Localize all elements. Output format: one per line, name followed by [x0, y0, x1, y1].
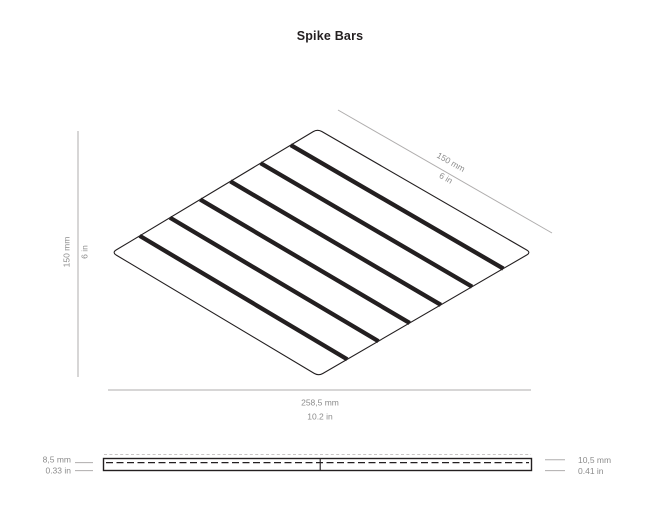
spike-bars-drawing: Spike Bars 150 mm 6 in 150 mm 6 in 258,5… — [0, 0, 671, 529]
spike-bar — [170, 218, 378, 342]
width-dimension-label-in: 10.2 in — [307, 412, 333, 422]
drawing-canvas: Spike Bars 150 mm 6 in 150 mm 6 in 258,5… — [0, 0, 671, 529]
plate-outline — [114, 130, 529, 374]
isometric-view — [114, 130, 529, 374]
spike-bar — [261, 163, 473, 287]
height-dimension-label-mm: 150 mm — [62, 237, 72, 268]
depth-dimension-label-in: 6 in — [438, 170, 455, 186]
total-height-label-mm: 10,5 mm — [578, 455, 611, 465]
width-dimension-label-mm: 258,5 mm — [301, 398, 339, 408]
spike-bar — [140, 236, 348, 359]
profile-view: 8,5 mm 0.33 in 10,5 mm 0.41 in — [43, 455, 611, 477]
plate-thickness-label-mm: 8,5 mm — [43, 455, 71, 465]
drawing-title: Spike Bars — [297, 29, 364, 43]
plate-thickness-label-in: 0.33 in — [45, 466, 71, 476]
spike-bar — [291, 145, 504, 269]
profile-plate-outline — [104, 459, 532, 471]
spike-bar — [230, 181, 441, 305]
height-dimension-label-in: 6 in — [80, 245, 90, 259]
total-height-label-in: 0.41 in — [578, 466, 604, 476]
depth-dimension-label-mm: 150 mm — [435, 150, 467, 174]
spike-bar — [200, 200, 410, 324]
